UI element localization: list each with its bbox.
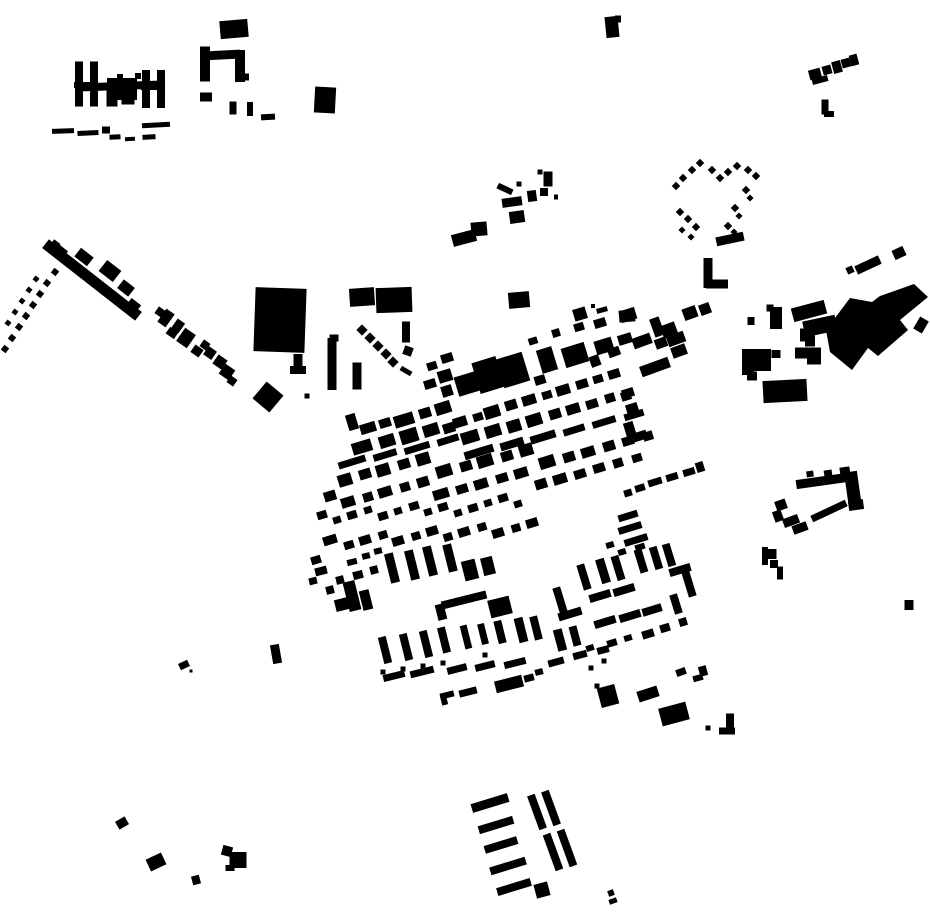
building-footprint [125,137,135,142]
building-footprint [824,469,833,476]
building-footprint [226,865,235,871]
building-footprint [328,338,337,390]
building-footprint [595,684,600,689]
building-footprint [591,304,595,308]
building-footprint [742,349,754,375]
building-footprint [135,73,141,79]
building-footprint [706,726,711,731]
building-footprint [509,210,526,224]
building-footprint [290,366,306,374]
building-footprint [305,394,310,399]
building-footprint [441,661,446,666]
building-footprint [706,280,728,289]
building-footprint [204,50,240,61]
building-footprint [807,348,821,365]
building-footprint [483,653,488,658]
building-footprint [824,111,834,117]
building-footprint [772,350,781,358]
building-footprint [748,317,755,325]
building-footprint [762,379,807,403]
building-footprint [508,291,530,309]
building-footprint [544,172,553,187]
building-footprint [122,90,135,105]
building-footprint [253,287,306,353]
building-footprint [517,182,522,187]
building-footprint [770,560,778,568]
building-footprint [540,188,548,196]
building-footprint [349,287,375,307]
building-footprint [806,471,814,478]
building-footprint [767,305,774,312]
building-footprint [762,547,768,565]
building-footprint [538,170,543,175]
map-canvas [0,0,930,924]
building-footprint [102,127,110,134]
building-footprint [777,567,783,580]
building-footprint [141,82,165,90]
building-footprint [726,714,734,729]
building-footprint [261,114,275,121]
building-footprint [719,728,735,735]
building-footprint [768,549,777,559]
building-footprint [353,363,362,390]
building-footprint [527,190,537,202]
building-footprint [381,670,386,675]
building-footprint [376,287,413,313]
building-footprint [117,74,123,80]
building-footprint [615,16,621,23]
building-footprint [905,600,914,610]
building-footprint [602,659,607,664]
figure-ground-map [0,0,930,924]
building-footprint [330,335,339,342]
building-footprint [470,221,487,236]
building-footprint [200,93,212,102]
building-footprint [848,499,864,511]
building-footprint [230,102,237,115]
building-footprint [402,322,410,343]
building-footprint [247,102,253,116]
building-footprint [219,19,248,39]
building-footprint [237,74,249,81]
building-footprint [795,348,809,359]
building-footprint [800,329,810,342]
building-footprint [109,134,120,140]
building-footprint [52,128,74,134]
building-footprint [190,670,193,673]
building-footprint [107,90,118,107]
building-footprint [142,134,155,140]
building-footprint [314,86,336,113]
building-footprint [554,195,558,200]
building-footprint [589,666,594,671]
